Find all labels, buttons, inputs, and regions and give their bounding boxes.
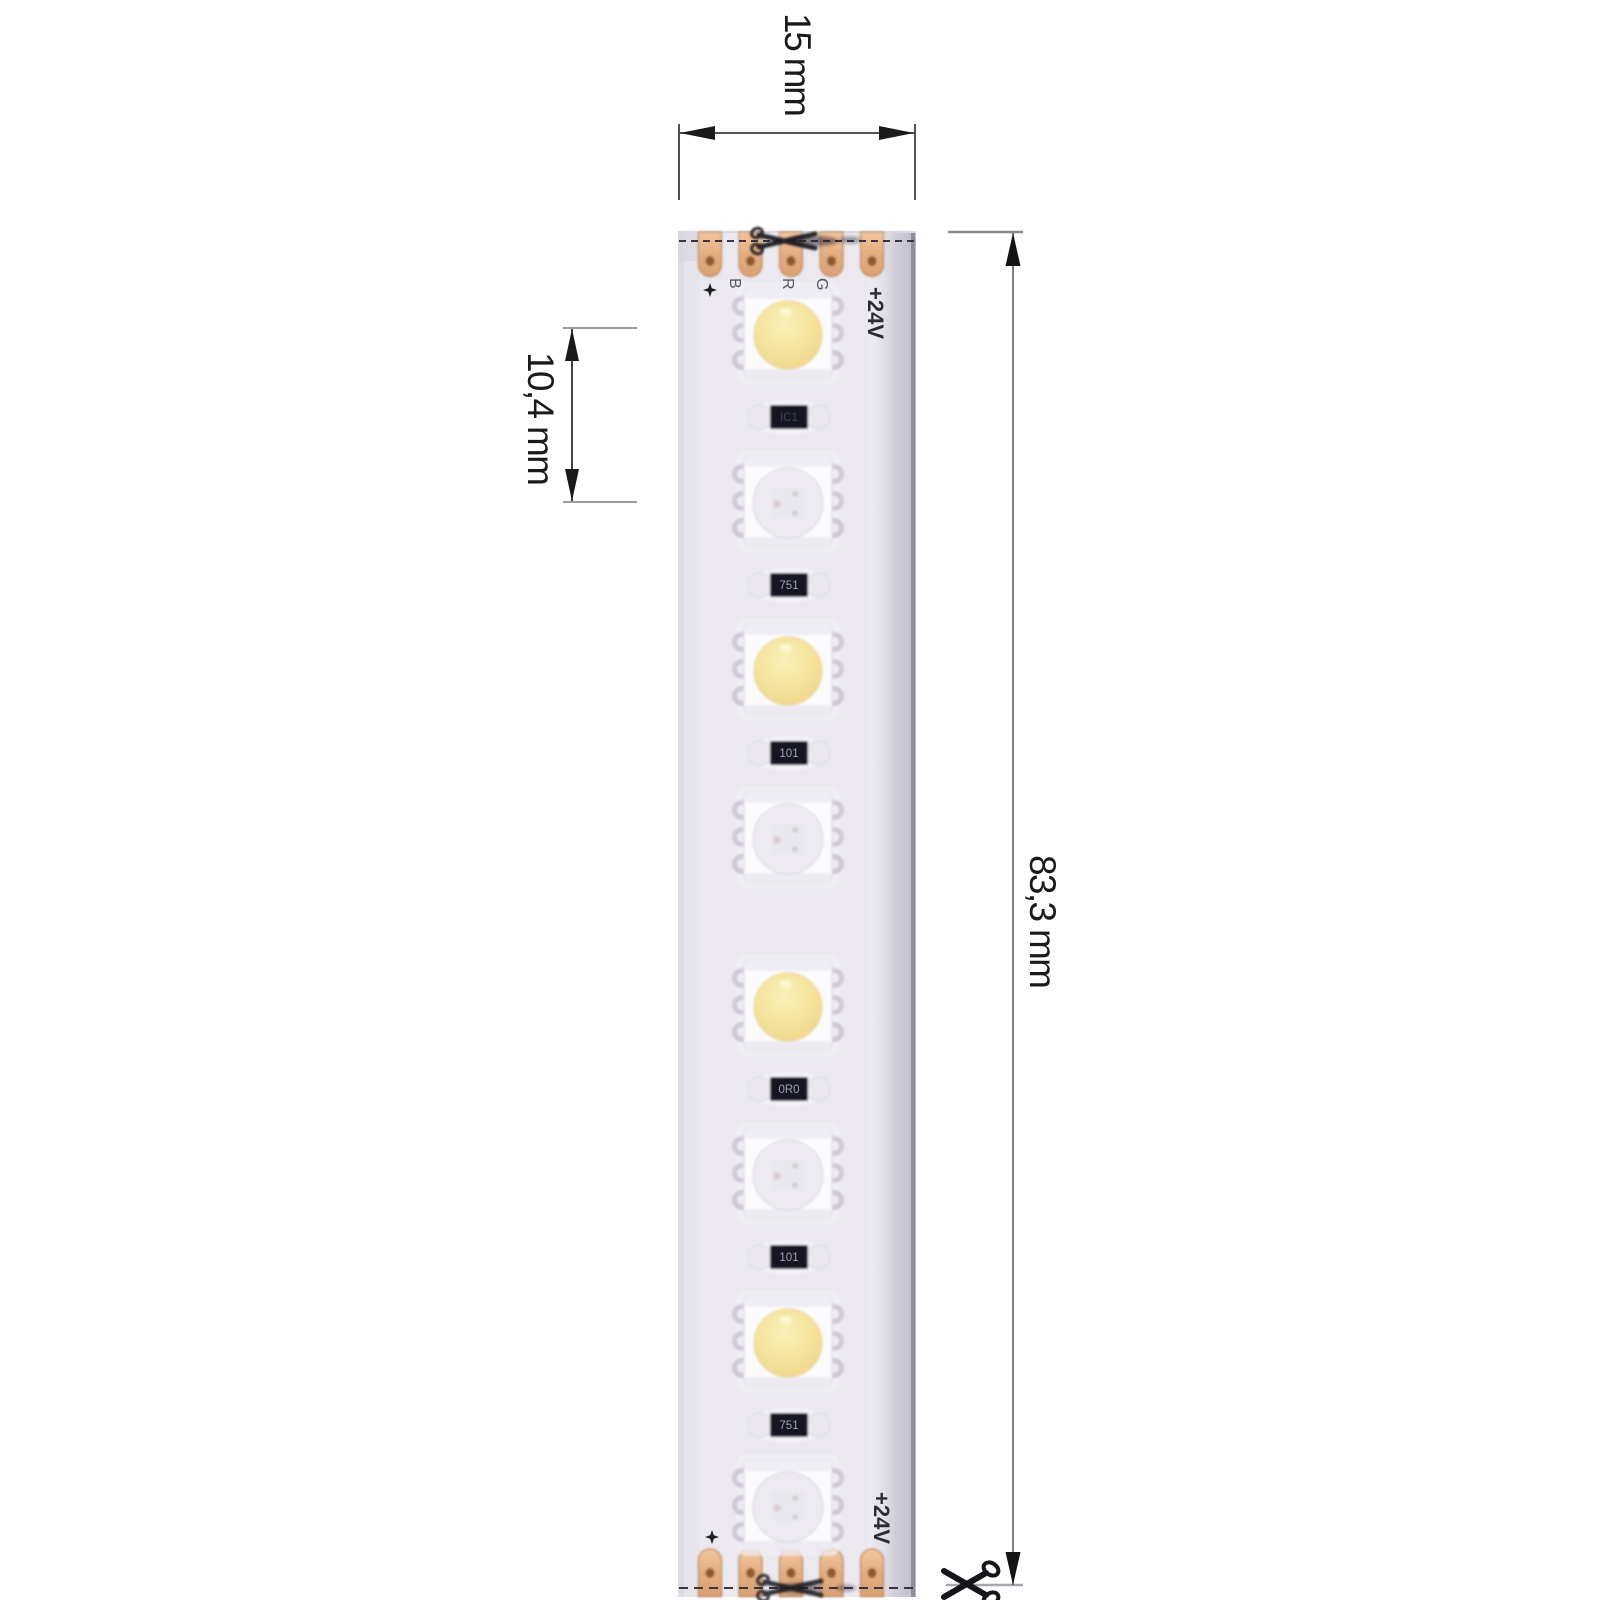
svg-text:101: 101 [779,748,798,760]
svg-text:B: B [726,278,743,289]
svg-text:IC1: IC1 [780,412,798,424]
svg-text:+24V: +24V [863,287,888,339]
svg-text:10,4 mm: 10,4 mm [520,352,561,486]
svg-text:751: 751 [779,580,798,592]
svg-text:15 mm: 15 mm [777,13,818,117]
svg-text:0R0: 0R0 [778,1084,799,1096]
svg-text:83,3 mm: 83,3 mm [1022,855,1063,989]
svg-text:751: 751 [779,1420,798,1432]
svg-text:R: R [779,278,796,290]
svg-text:G: G [813,278,830,290]
svg-text:101: 101 [779,1252,798,1264]
svg-text:+24V: +24V [869,1492,894,1544]
